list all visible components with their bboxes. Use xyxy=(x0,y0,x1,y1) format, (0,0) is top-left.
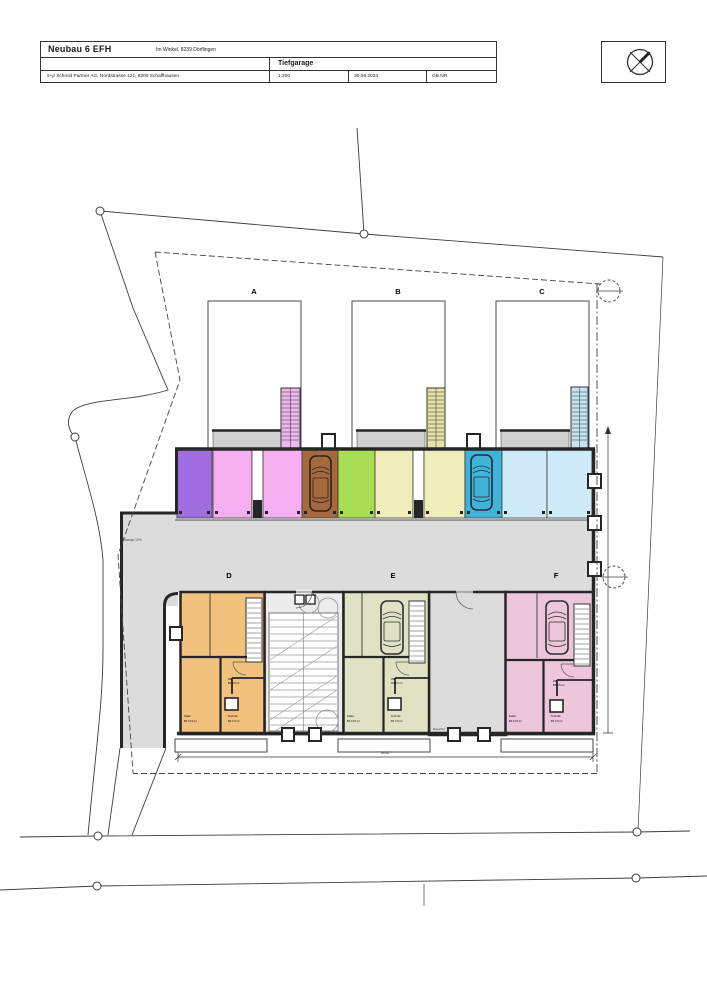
room-label: Wa xyxy=(228,677,233,681)
parking-stall-4 xyxy=(302,450,338,518)
parking-stall-6 xyxy=(375,450,413,518)
unit-e: Wa BF 3.5 m² Keller BF 13.5 m² Technik B… xyxy=(344,592,430,734)
unit-d-stair xyxy=(246,598,262,662)
stall-gap-pillar xyxy=(414,500,423,518)
shaft-box xyxy=(225,698,238,710)
shaft-box xyxy=(478,728,490,741)
road-line-upper xyxy=(20,831,690,837)
room-area: BF 13.5 m² xyxy=(347,719,360,723)
dim-arrow xyxy=(605,426,611,434)
light-well xyxy=(501,739,593,752)
house-c-label: C xyxy=(539,287,545,296)
unit-f-label: F xyxy=(554,571,559,580)
shaft-box xyxy=(448,728,460,741)
ramp-wall-right xyxy=(165,594,179,749)
room-label: Wa xyxy=(553,679,558,683)
parking-stall-3 xyxy=(263,450,302,518)
unit-d-label: D xyxy=(226,571,232,580)
unit-f: Wa BF 3.5 m² Keller BF 13.5 m² Technik B… xyxy=(506,592,594,734)
room-area: BF 4.5 m² xyxy=(228,719,240,723)
parking-stall-10 xyxy=(547,450,592,518)
room-label: Keller xyxy=(509,714,516,718)
boundary-point xyxy=(96,207,104,215)
shaft-box xyxy=(588,516,601,530)
property-line-spur xyxy=(357,128,364,233)
room-area: BF 3.5 m² xyxy=(553,683,565,687)
room-area: BF 3.5 m² xyxy=(228,681,240,685)
parking-stall-2 xyxy=(213,450,252,518)
shaft-box xyxy=(588,474,601,488)
room-area: BF 13.5 m² xyxy=(509,719,522,723)
platform-c xyxy=(501,431,569,448)
boundary-point xyxy=(633,828,641,836)
unit-e-stair xyxy=(409,601,425,663)
boundary-dashed-top xyxy=(155,252,600,284)
ramp-label: Rampe 12% xyxy=(124,538,142,542)
room-label: Keller xyxy=(347,714,354,718)
property-line-right xyxy=(638,257,663,832)
corridor-stair xyxy=(269,593,338,732)
driveway-edges xyxy=(108,748,166,835)
house-b-label: B xyxy=(395,287,401,296)
platform-b xyxy=(357,431,425,448)
room-area: BF 13.5 m² xyxy=(184,719,197,723)
shaft-box xyxy=(282,728,294,741)
shaft-box xyxy=(170,627,182,640)
parking-stalls xyxy=(177,450,592,518)
parking-stall-9 xyxy=(502,450,547,518)
stall-gap-pillar xyxy=(253,500,262,518)
room-area: BF 3.5 m² xyxy=(391,681,403,685)
drawing-sheet: Neubau 6 EFH Im Winkel, 8239 Dörflingen … xyxy=(0,0,707,1000)
fixture-box xyxy=(295,595,304,604)
dim-line-right xyxy=(603,432,613,733)
unit-f-stair xyxy=(574,604,590,666)
visitor-zone xyxy=(429,592,506,735)
shaft-box xyxy=(467,434,480,449)
unit-e-label: E xyxy=(390,571,395,580)
site-plan: A B C xyxy=(0,0,707,1000)
boundary-point xyxy=(94,832,102,840)
dim-value: 49.30 xyxy=(381,751,390,755)
ramp-area xyxy=(120,514,177,748)
shaft-box xyxy=(550,700,563,712)
room-label: Technik xyxy=(391,714,401,718)
property-line-top xyxy=(100,211,663,257)
room-label: Wa xyxy=(391,677,396,681)
parking-stall-5 xyxy=(338,450,375,518)
house-a-label: A xyxy=(251,287,257,296)
boundary-point xyxy=(360,230,368,238)
light-well xyxy=(175,739,267,752)
shaft-box xyxy=(388,698,401,710)
unit-d: Wa BF 3.5 m² Keller BF 13.5 m² Technik B… xyxy=(181,592,265,734)
platform-a xyxy=(213,431,281,448)
road-line-lower xyxy=(0,876,707,890)
house-outlines: A B C xyxy=(208,287,589,449)
boundary-point xyxy=(632,874,640,882)
room-label: Technik xyxy=(551,714,561,718)
boundary-point xyxy=(71,433,79,441)
parking-stall-7 xyxy=(424,450,465,518)
entry-platforms xyxy=(212,431,570,449)
drive-aisle xyxy=(175,520,595,592)
room-area: BF 4.5 m² xyxy=(551,719,563,723)
visitor-zone-label: Besucher xyxy=(433,727,445,731)
parking-stall-1 xyxy=(177,450,212,518)
boundary-point xyxy=(93,882,101,890)
shaft-box xyxy=(588,562,601,576)
room-label: Keller xyxy=(184,714,191,718)
shaft-box xyxy=(322,434,335,449)
shaft-box xyxy=(309,728,321,741)
room-area: BF 4.5 m² xyxy=(391,719,403,723)
room-label: Technik xyxy=(228,714,238,718)
